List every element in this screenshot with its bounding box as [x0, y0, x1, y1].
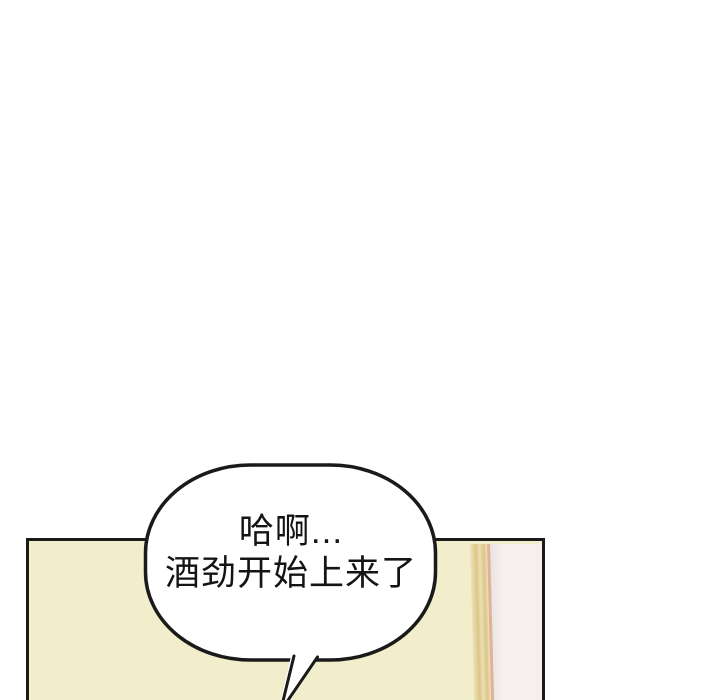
dialogue-line-2: 酒劲开始上来了 [145, 553, 437, 595]
dialogue-line-1: 哈啊... [145, 511, 437, 553]
door-frame-trim [470, 544, 494, 700]
wall-light-section [490, 544, 542, 700]
webtoon-page: 哈啊... 酒劲开始上来了 [0, 0, 720, 700]
speech-bubble-text: 哈啊... 酒劲开始上来了 [145, 511, 437, 595]
